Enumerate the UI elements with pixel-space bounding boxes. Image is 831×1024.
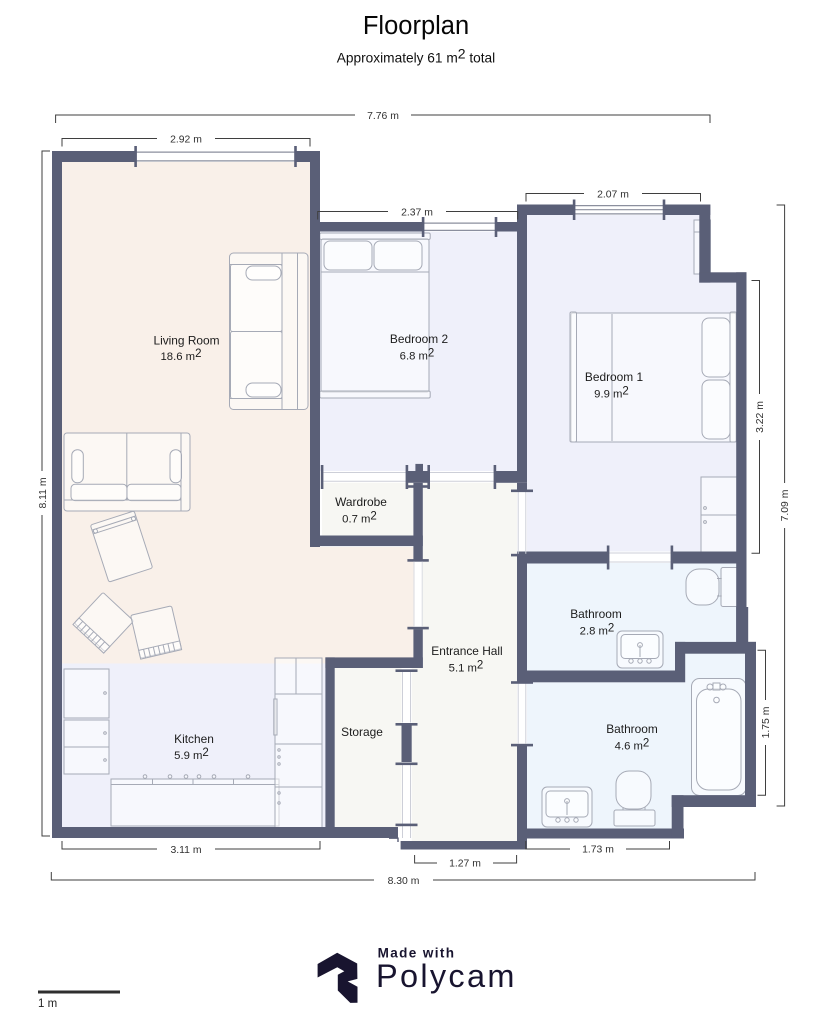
svg-text:Entrance Hall: Entrance Hall <box>431 644 502 658</box>
svg-text:3.22 m: 3.22 m <box>755 401 766 433</box>
svg-text:Living Room: Living Room <box>153 334 219 348</box>
svg-text:1 m: 1 m <box>38 998 57 1010</box>
svg-text:Storage: Storage <box>341 725 383 739</box>
svg-text:Wardrobe: Wardrobe <box>335 495 387 509</box>
svg-text:Approximately 61 m2 total: Approximately 61 m2 total <box>337 46 495 66</box>
svg-text:8.11 m: 8.11 m <box>38 478 49 509</box>
svg-text:2.92 m: 2.92 m <box>170 135 202 146</box>
svg-text:Floorplan: Floorplan <box>363 12 469 40</box>
svg-text:1.75 m: 1.75 m <box>761 707 772 739</box>
svg-text:Bedroom 2: Bedroom 2 <box>390 332 449 346</box>
svg-text:7.76 m: 7.76 m <box>367 111 399 122</box>
svg-text:Kitchen: Kitchen <box>174 732 214 746</box>
svg-text:1.27 m: 1.27 m <box>449 859 481 870</box>
svg-text:Polycam: Polycam <box>376 958 517 994</box>
svg-text:Bedroom 1: Bedroom 1 <box>585 370 644 384</box>
svg-text:3.11 m: 3.11 m <box>171 845 202 856</box>
svg-text:8.30 m: 8.30 m <box>388 876 420 887</box>
svg-text:Bathroom: Bathroom <box>570 607 622 621</box>
svg-text:2.37 m: 2.37 m <box>401 208 433 219</box>
svg-text:7.09 m: 7.09 m <box>780 490 791 522</box>
svg-text:2.07 m: 2.07 m <box>597 190 629 201</box>
svg-text:1.73 m: 1.73 m <box>582 845 614 856</box>
svg-text:Bathroom: Bathroom <box>606 722 658 736</box>
